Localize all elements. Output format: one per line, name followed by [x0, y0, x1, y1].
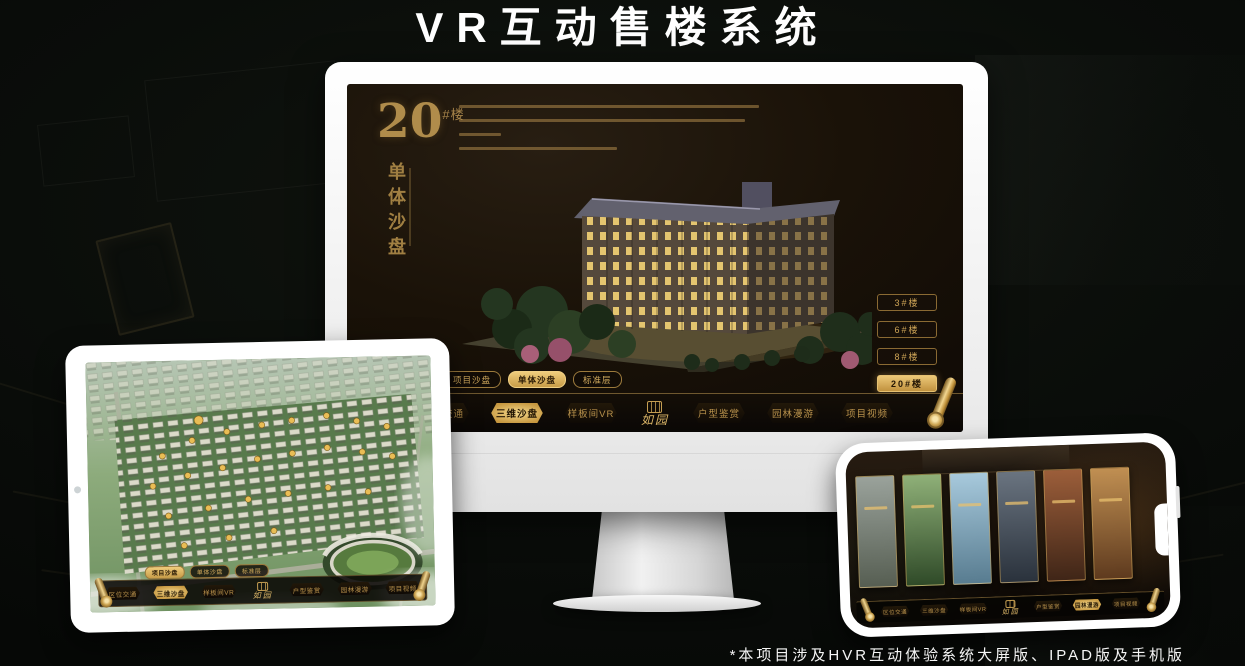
- tablet-nav-item-garden-roam[interactable]: 园林漫游: [335, 582, 375, 596]
- floor-button-3[interactable]: 3#楼: [877, 294, 937, 311]
- page-title: VR互动售楼系统: [0, 0, 1245, 56]
- floor-button-6[interactable]: 6#楼: [877, 321, 937, 338]
- nav-item-project-video[interactable]: 项目视频: [837, 403, 897, 423]
- floor-button-group: 3#楼 6#楼 8#楼 20#楼: [877, 294, 937, 392]
- floor-button-8[interactable]: 8#楼: [877, 348, 937, 365]
- sandtable-vertical-title: 单体沙盘: [383, 162, 409, 262]
- phone-nav-item-floorplans[interactable]: 户型鉴赏: [1031, 600, 1064, 612]
- subtab-standard-floor[interactable]: 标准层: [573, 371, 622, 388]
- vertical-caption-line: [409, 168, 411, 246]
- pano-thumbnail[interactable]: [949, 472, 992, 585]
- pano-thumbnail[interactable]: [1043, 468, 1086, 581]
- sandtable-subtabs: 项目沙盘 单体沙盘 标准层: [443, 371, 622, 388]
- phone-nav-item-garden-roam[interactable]: 园林漫游: [1070, 599, 1103, 611]
- tablet-brand-logo: 如园: [253, 581, 273, 599]
- tablet-device: 项目沙盘 单体沙盘 标准层 区位交通 三维沙盘 样板间VR 如园 户型鉴赏 园林…: [65, 338, 455, 633]
- phone-screen: 区位交通 三维沙盘 样板间VR 如园 户型鉴赏 园林漫游 项目视频: [845, 441, 1171, 628]
- logo-seal-icon: [1005, 599, 1015, 607]
- tablet-nav-item-floorplans[interactable]: 户型鉴赏: [287, 583, 327, 597]
- phone-nav-item-sandtable[interactable]: 三维沙盘: [917, 604, 950, 616]
- subtab-project-sandtable[interactable]: 项目沙盘: [443, 371, 501, 388]
- pano-thumbnail[interactable]: [1090, 467, 1133, 580]
- nav-item-sandtable[interactable]: 三维沙盘: [487, 403, 547, 423]
- phone-device: 区位交通 三维沙盘 样板间VR 如园 户型鉴赏 园林漫游 项目视频: [835, 432, 1182, 638]
- tablet-subtab-standard-floor[interactable]: 标准层: [235, 564, 269, 578]
- nav-item-showroom-vr[interactable]: 样板间VR: [561, 403, 621, 423]
- monitor-stand-neck: [592, 510, 734, 600]
- logo-seal-icon: [257, 581, 268, 590]
- phone-notch: [1154, 503, 1169, 555]
- bg-map-block: [144, 60, 348, 201]
- monitor-stand-base: [553, 595, 761, 612]
- tablet-subtab-single-sandtable[interactable]: 单体沙盘: [190, 565, 230, 579]
- logo-text: 如园: [641, 414, 669, 426]
- building-heading: 20#楼: [377, 98, 465, 146]
- stage: VR互动售楼系统 20#楼 单体沙盘: [0, 0, 1245, 666]
- bg-plaque-outline: [95, 222, 194, 336]
- phone-nav-item-location[interactable]: 区位交通: [878, 605, 911, 617]
- tablet-nav-item-sandtable[interactable]: 三维沙盘: [151, 585, 191, 599]
- footnote-text: *本项目涉及HVR互动体验系统大屏版、IPAD版及手机版: [730, 644, 1185, 665]
- tablet-subtab-project-sandtable[interactable]: 项目沙盘: [145, 566, 185, 580]
- tablet-screen: 项目沙盘 单体沙盘 标准层 区位交通 三维沙盘 样板间VR 如园 户型鉴赏 园林…: [85, 355, 435, 612]
- tablet-nav-item-showroom-vr[interactable]: 样板间VR: [199, 584, 239, 598]
- nav-item-garden-roam[interactable]: 园林漫游: [763, 403, 823, 423]
- logo-text: 如园: [1002, 608, 1020, 616]
- building-number: 20: [377, 94, 442, 149]
- logo-text: 如园: [253, 591, 273, 599]
- pano-gallery: [855, 467, 1133, 588]
- tablet-camera-icon: [74, 486, 81, 493]
- logo-seal-icon: [647, 401, 662, 413]
- brand-logo: 如园: [641, 401, 669, 426]
- bg-city-photo: [975, 55, 1245, 285]
- nav-item-floorplans[interactable]: 户型鉴赏: [689, 403, 749, 423]
- phone-brand-logo: 如园: [1001, 599, 1020, 616]
- description-text-lines: [459, 105, 769, 161]
- subtab-single-sandtable[interactable]: 单体沙盘: [508, 371, 566, 388]
- pano-thumbnail[interactable]: [902, 473, 945, 586]
- pano-thumbnail[interactable]: [996, 470, 1039, 583]
- phone-nav-item-showroom-vr[interactable]: 样板间VR: [956, 603, 989, 615]
- phone-nav-item-project-video[interactable]: 项目视频: [1109, 597, 1142, 609]
- building-model-image: [442, 154, 872, 372]
- bg-map-block: [37, 115, 135, 186]
- phone-side-button: [1175, 486, 1180, 518]
- floor-button-20[interactable]: 20#楼: [877, 375, 937, 392]
- pano-thumbnail[interactable]: [855, 475, 898, 588]
